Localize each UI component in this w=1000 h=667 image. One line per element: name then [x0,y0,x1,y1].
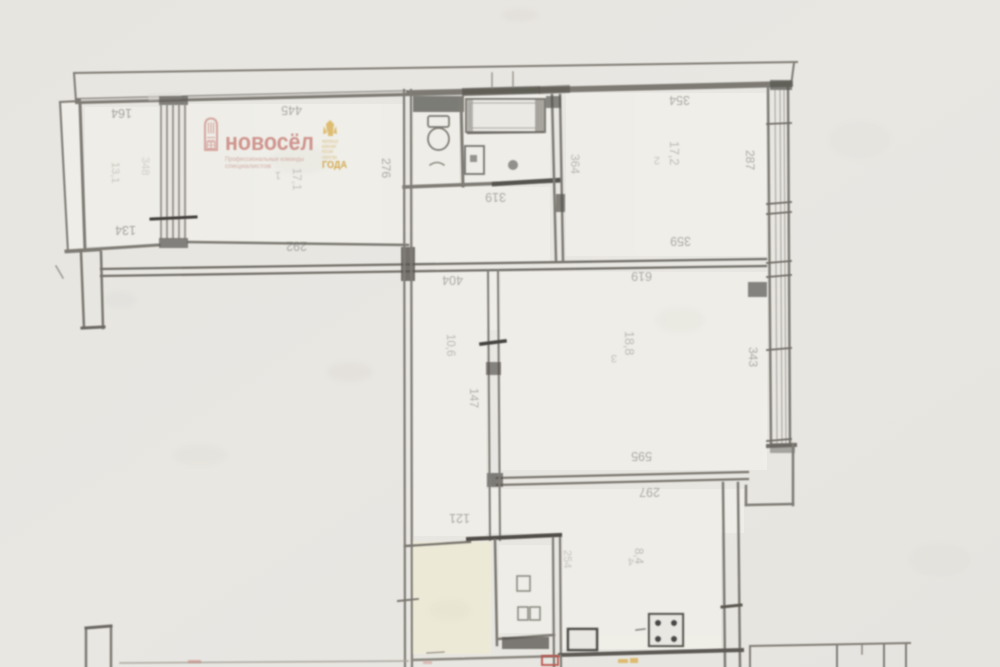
svg-text:595: 595 [631,449,652,463]
svg-text:319: 319 [485,190,506,204]
svg-text:134: 134 [115,223,136,237]
svg-text:292: 292 [286,239,307,253]
svg-text:1: 1 [275,169,281,181]
svg-text:297: 297 [639,485,660,499]
svg-text:359: 359 [670,234,691,248]
svg-text:специалистов: специалистов [225,163,272,170]
svg-text:619: 619 [631,269,652,283]
svg-text:Профессиональные команды: Профессиональные команды [225,156,304,163]
svg-text:3: 3 [611,352,617,364]
svg-text:354: 354 [669,93,690,107]
svg-text:новосёл: новосёл [225,129,314,156]
svg-text:147: 147 [467,388,481,408]
svg-text:343: 343 [746,347,760,367]
svg-text:13,1: 13,1 [109,162,121,183]
svg-text:18,8: 18,8 [622,331,636,355]
svg-text:164: 164 [111,106,132,120]
svg-text:8,4: 8,4 [632,548,644,565]
svg-text:121: 121 [449,511,470,525]
svg-text:276: 276 [379,158,393,178]
svg-text:287: 287 [743,150,757,170]
svg-text:2: 2 [654,154,660,166]
svg-text:445: 445 [281,103,302,117]
svg-text:17,1: 17,1 [290,168,302,190]
svg-text:364: 364 [568,154,582,174]
svg-text:РОССИИ: РОССИИ [322,149,333,154]
svg-text:ГОДА: ГОДА [322,159,347,171]
svg-text:17,2: 17,2 [667,141,681,165]
svg-text:10,6: 10,6 [444,334,456,356]
svg-text:348: 348 [139,157,151,175]
svg-text:404: 404 [442,273,463,287]
svg-text:254: 254 [561,550,573,568]
